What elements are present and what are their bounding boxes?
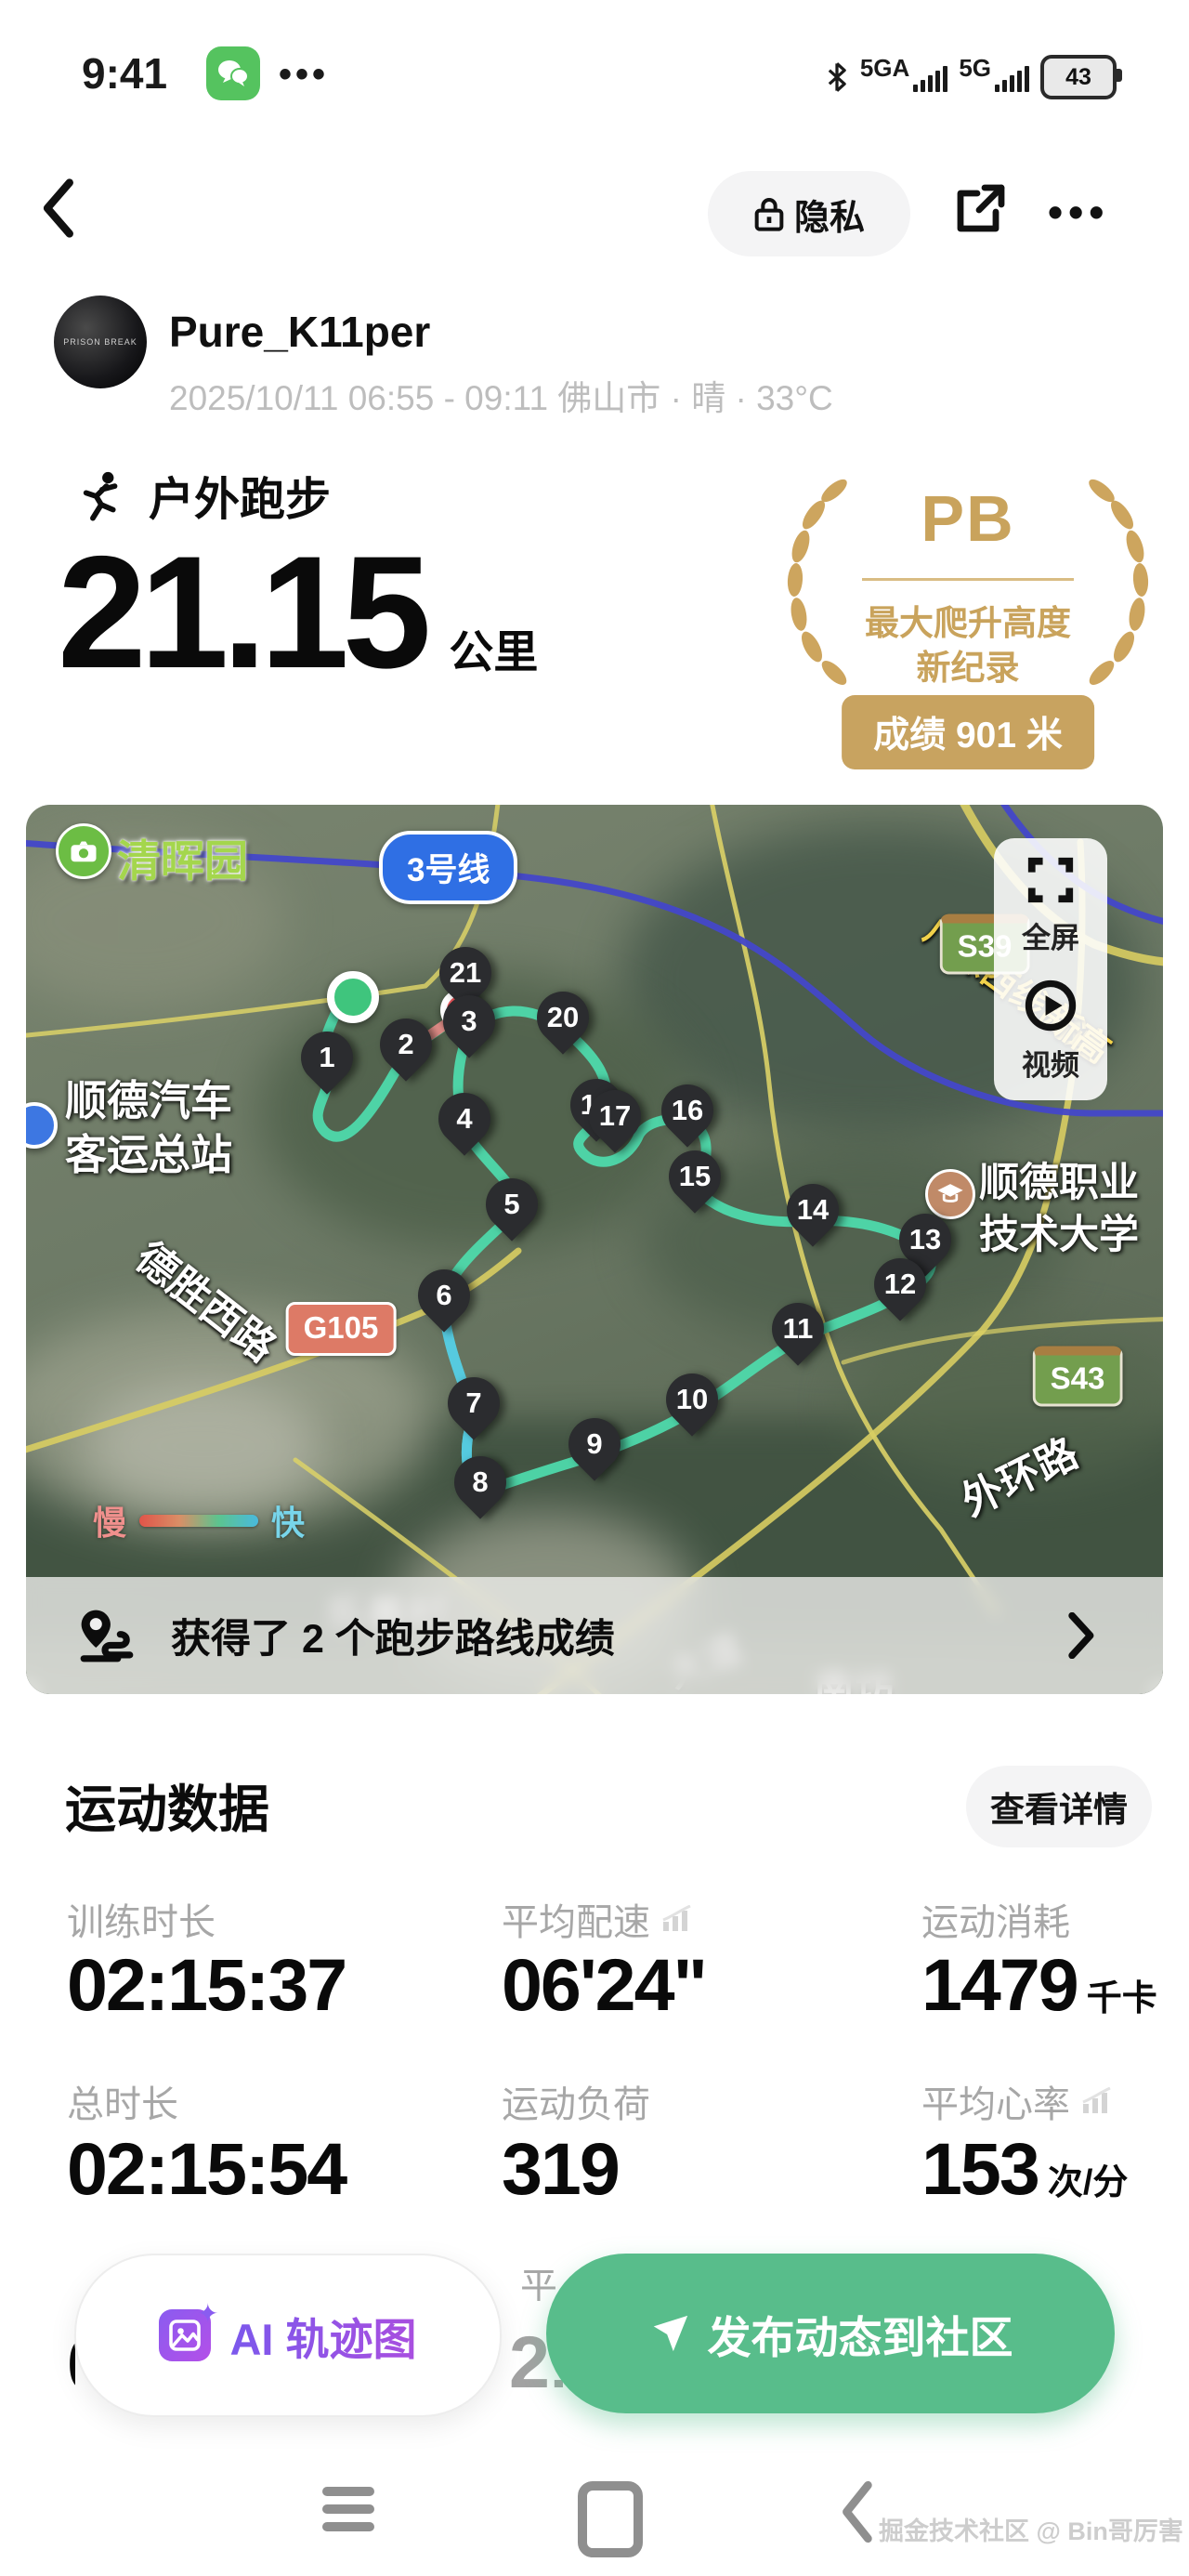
battery-percent: 43: [1065, 64, 1091, 91]
pb-badge: PB 最大爬升高度 新纪录 成绩 901 米: [777, 465, 1159, 771]
map-label-university-2: 技术大学: [979, 1203, 1139, 1260]
fullscreen-label[interactable]: 全屏: [1022, 914, 1079, 956]
route-achievement-banner[interactable]: 获得了 2 个跑步路线成绩: [26, 1577, 1163, 1694]
ai-track-label: AI 轨迹图: [229, 2304, 416, 2368]
watermark: 掘金技术社区 @ Bin哥厉害: [879, 2511, 1183, 2547]
more-options-button[interactable]: •••: [1048, 184, 1141, 240]
lock-icon: [753, 195, 785, 232]
stat-value: 319: [502, 2126, 619, 2212]
sport-data-title: 运动数据: [65, 1768, 269, 1842]
share-button[interactable]: [949, 180, 1009, 240]
activity-meta: 2025/10/11 06:55 - 09:11 佛山市 · 晴 · 33°C: [169, 370, 833, 420]
chevron-right-icon: [1065, 1612, 1096, 1659]
video-play-icon[interactable]: [1024, 979, 1078, 1032]
road-shield-G105: G105: [286, 1302, 397, 1356]
network-type-1: 5GA: [860, 54, 909, 83]
ai-image-icon: ✦: [159, 2309, 211, 2361]
avatar-caption: PRISON BREAK: [63, 337, 137, 347]
achievement-text: 获得了 2 个跑步路线成绩: [171, 1607, 615, 1664]
distance-value: 21.15: [58, 520, 425, 704]
distance-unit: 公里: [449, 615, 538, 680]
university-poi-icon: [925, 1169, 975, 1219]
fullscreen-icon[interactable]: [1026, 855, 1076, 905]
camera-poi-icon: [56, 823, 111, 879]
bluetooth-icon: [825, 61, 849, 93]
screen: 9:41 ••• 5GA 5G 43 隐私 •: [0, 0, 1189, 2576]
notification-dots-icon: •••: [279, 54, 329, 96]
ai-track-button[interactable]: ✦ AI 轨迹图: [74, 2254, 502, 2417]
distance-block: 21.15 公里: [58, 520, 538, 704]
stat-label: 平均心率: [921, 2074, 1113, 2128]
status-bar: 9:41 ••• 5GA 5G 43: [0, 45, 1189, 110]
pb-record-type: 最大爬升高度: [777, 595, 1159, 645]
map-label-qinghuiyuan: 清晖园: [117, 825, 248, 889]
route-start-dot: [327, 971, 379, 1023]
pace-legend: 慢 快: [93, 1496, 305, 1544]
network-type-2: 5G: [959, 54, 991, 83]
battery-indicator: 43: [1040, 55, 1117, 99]
map-label-university-1: 顺德职业: [979, 1150, 1139, 1208]
privacy-label: 隐私: [794, 189, 865, 240]
stat-label: 平均配速: [502, 1892, 693, 1946]
nav-back-button[interactable]: [834, 2479, 881, 2544]
nav-bar: 隐私 •••: [0, 164, 1189, 266]
activity-type-row: 户外跑步: [74, 463, 331, 529]
legend-fast-label: 快: [271, 1496, 305, 1544]
stat-value: 06'24": [502, 1942, 706, 2028]
avatar[interactable]: PRISON BREAK: [54, 296, 147, 388]
video-label[interactable]: 视频: [1022, 1042, 1079, 1084]
route-map[interactable]: 清晖园 3号线 顺德汽车 客运总站 广珠西线高速 新高 德胜西路 外环路 乐善村…: [26, 805, 1163, 1694]
cellular-signal-1: 5GA: [860, 63, 947, 92]
sparkle-icon: ✦: [197, 2298, 218, 2329]
wechat-icon: [206, 46, 260, 100]
pb-title: PB: [777, 481, 1159, 556]
road-shield-S43: S43: [1033, 1347, 1123, 1407]
stat-value: 153次/分: [921, 2126, 1128, 2212]
clock: 9:41: [82, 48, 167, 99]
send-icon: [648, 2312, 691, 2355]
runner-icon: [74, 469, 128, 523]
stat-label: 总时长: [67, 2074, 178, 2128]
metro-line3-badge: 3号线: [379, 831, 517, 904]
back-button[interactable]: [37, 171, 93, 245]
stat-label: 训练时长: [67, 1892, 216, 1946]
map-label-bus-station-2: 客运总站: [65, 1121, 232, 1181]
stat-value: 1479千卡: [921, 1942, 1157, 2028]
publish-button[interactable]: 发布动态到社区: [546, 2254, 1115, 2413]
stat-label: 运动消耗: [921, 1892, 1070, 1946]
privacy-button[interactable]: 隐私: [708, 171, 910, 256]
stat-label: 运动负荷: [502, 2074, 650, 2128]
map-label-bus-station-1: 顺德汽车: [65, 1067, 232, 1127]
view-details-button[interactable]: 查看详情: [966, 1766, 1152, 1847]
username: Pure_K11per: [169, 307, 430, 357]
nav-home-button[interactable]: [578, 2481, 643, 2557]
stat-value: 02:15:54: [67, 2126, 346, 2212]
pb-record-label: 新纪录: [777, 639, 1159, 690]
activity-type-label: 户外跑步: [149, 463, 331, 529]
cellular-signal-2: 5G: [959, 63, 1029, 92]
pace-gradient-bar: [139, 1515, 258, 1527]
legend-slow-label: 慢: [93, 1496, 126, 1544]
map-controls-panel: 全屏 视频: [994, 838, 1107, 1100]
pb-divider: [862, 578, 1074, 581]
stat-value: 02:15:37: [67, 1942, 346, 2028]
pb-result-pill: 成绩 901 米: [842, 695, 1094, 769]
publish-label: 发布动态到社区: [708, 2302, 1013, 2366]
nav-menu-button[interactable]: [322, 2487, 374, 2531]
route-pin-icon: [76, 1608, 137, 1663]
